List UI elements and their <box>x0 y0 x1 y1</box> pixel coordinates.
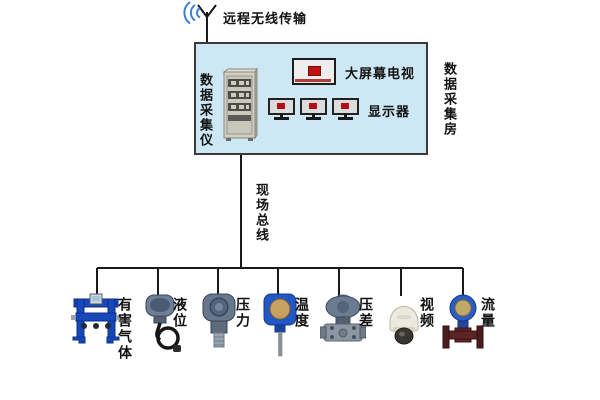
device-label-flow: 流量 <box>480 297 494 329</box>
big-screen-tv-label: 大屏幕电视 <box>345 63 415 82</box>
device-label-video: 视频 <box>419 297 433 329</box>
device-label-liquid-level: 液位 <box>172 297 186 329</box>
monitor-icon <box>300 98 327 115</box>
device-label-harmful-gas: 有害气体 <box>117 297 131 361</box>
device-label-diff-pressure: 压差 <box>358 297 372 329</box>
device-label-pressure: 压力 <box>235 297 249 329</box>
tv-logo <box>308 66 321 76</box>
monitors-label: 显示器 <box>368 101 410 120</box>
data-room-label: 数据采集房 <box>442 62 455 137</box>
tv-caption-strip <box>295 79 331 82</box>
big-screen-tv-icon <box>292 58 336 85</box>
pressure-device-icon <box>201 292 237 356</box>
wireless-transmission-label: 远程无线传输 <box>223 8 307 27</box>
wireless-waves-icon <box>184 2 200 24</box>
antenna-icon <box>198 5 216 43</box>
daq-cabinet-icon <box>222 68 260 142</box>
monitor-icon <box>268 98 295 115</box>
fieldbus-label: 现场总线 <box>254 183 267 243</box>
diagram-canvas: 远程无线传输 数据采集仪 数据采集房 大屏幕电视 显示器 <box>0 0 600 400</box>
harmful-gas-device-icon <box>70 293 122 345</box>
daq-cabinet-label: 数据采集仪 <box>198 73 211 148</box>
video-camera-device-icon <box>387 293 421 345</box>
device-label-temperature: 温度 <box>294 297 308 329</box>
monitor-icon <box>332 98 359 115</box>
